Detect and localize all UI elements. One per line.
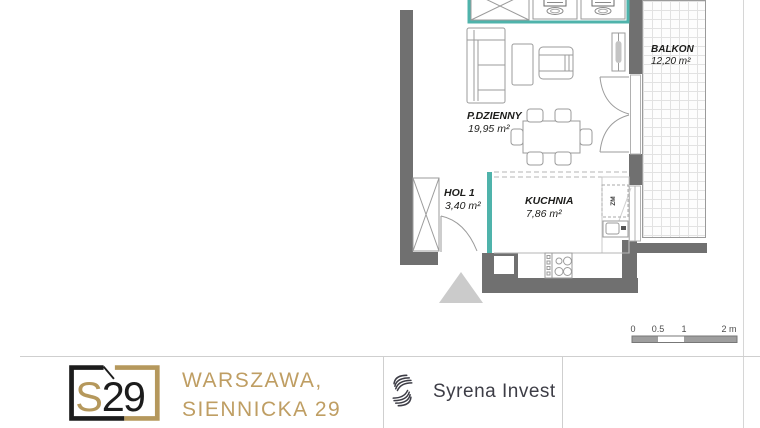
room-area-kuchnia: 7,86 m² (526, 208, 562, 220)
wall-right-mid (629, 154, 642, 185)
s29-logo: S 29 (64, 363, 162, 423)
appliance-washer (533, 0, 577, 19)
entrance-door (441, 216, 477, 252)
room-label-pdzienny: P.DZIENNY (467, 110, 523, 122)
address-line-2: SIENNICKA 29 (182, 395, 341, 424)
chair (527, 109, 543, 122)
footer-cell-divider (562, 357, 563, 428)
balcony-double-door (600, 75, 641, 154)
wall-bottom (482, 278, 638, 293)
hall-wardrobe (413, 178, 439, 251)
scale-bar: 0 0.5 1 2 m (630, 324, 737, 343)
wall-right-top (629, 0, 642, 74)
address-line-1: WARSZAWA, (182, 366, 341, 395)
wall-left-stub (400, 252, 438, 265)
armchair (539, 47, 573, 79)
room-area-pdzienny: 19,95 m² (468, 123, 510, 135)
sink (603, 221, 628, 237)
wall-left (400, 10, 413, 265)
project-address: WARSZAWA, SIENNICKA 29 (182, 366, 341, 424)
upper-room-fixtures (471, 0, 625, 20)
developer-name: Syrena Invest (433, 381, 556, 403)
chair (580, 129, 592, 145)
stove (545, 253, 572, 278)
entry-corner-notch (494, 256, 514, 274)
footer-divider-line (20, 356, 760, 357)
scale-tick: 0.5 (652, 324, 665, 334)
chair (555, 109, 571, 122)
dining-set (511, 109, 592, 165)
room-label-kuchnia: KUCHNIA (525, 195, 573, 207)
appliance-dryer (581, 0, 625, 19)
dishwasher-label: ZM (610, 196, 617, 205)
chair (527, 152, 543, 165)
syrena-logo-icon (389, 372, 416, 409)
chair (555, 152, 571, 165)
s29-logo-mark: S 29 (64, 363, 162, 423)
room-area-hol: 3,40 m² (445, 200, 481, 212)
room-label-balkon: BALKON (651, 44, 695, 55)
teal-wall-kitchen (487, 172, 492, 253)
dining-table (523, 121, 580, 153)
floorplan-sheet: ZM P.DZIENNY 19,95 m (0, 0, 760, 428)
chair (511, 129, 523, 145)
scale-tick: 0 (630, 324, 635, 334)
radiator (612, 33, 625, 71)
corner-sofa (467, 28, 505, 103)
wardrobe-top (471, 0, 529, 20)
scale-tick: 1 (681, 324, 686, 334)
room-label-hol: HOL 1 (444, 187, 475, 199)
footer-cell-divider (383, 357, 384, 428)
dishwasher: ZM (602, 185, 628, 217)
floorplan-drawing: ZM P.DZIENNY 19,95 m (0, 0, 760, 356)
entrance-marker (439, 272, 483, 303)
s29-logo-s: S (75, 373, 103, 420)
scale-tick: 2 m (721, 324, 736, 334)
s29-logo-number: 29 (102, 373, 145, 420)
room-area-balkon: 12,20 m² (651, 56, 691, 67)
coffee-table (512, 44, 533, 85)
balcony-slab-edge (629, 243, 707, 253)
